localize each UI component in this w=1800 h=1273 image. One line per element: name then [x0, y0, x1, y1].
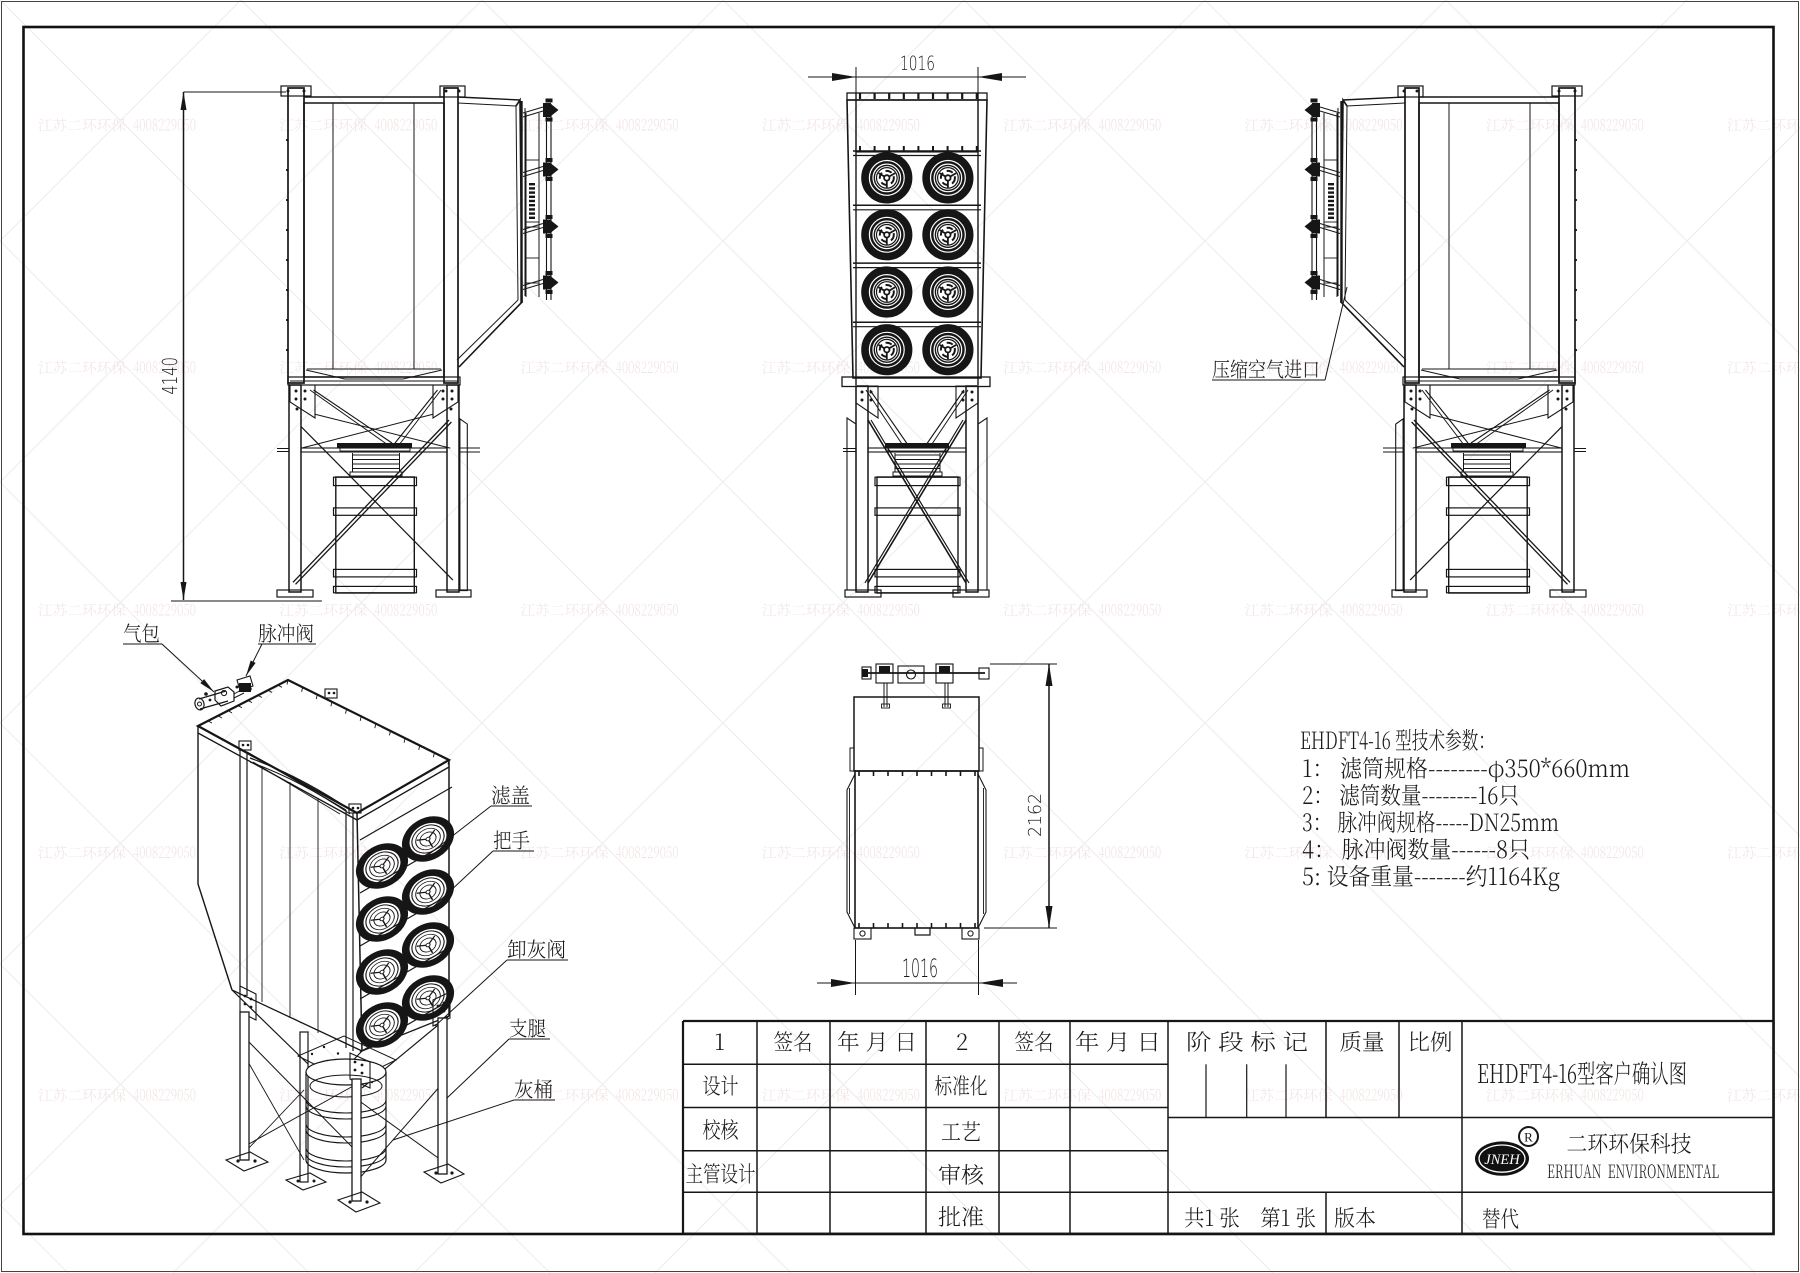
svg-text:R: R: [1524, 1130, 1533, 1145]
svg-text:JNEH: JNEH: [1484, 1152, 1521, 1168]
